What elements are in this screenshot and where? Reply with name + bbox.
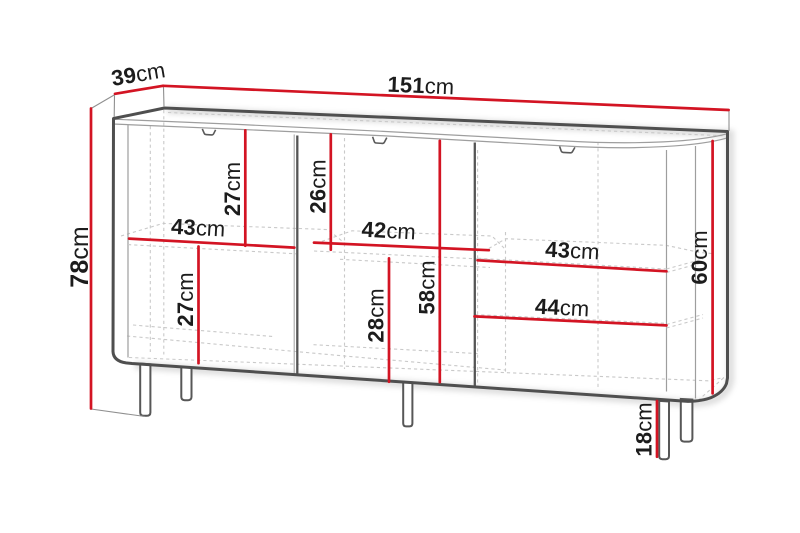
- svg-text:43cm: 43cm: [545, 237, 600, 265]
- svg-text:27cm: 27cm: [173, 272, 198, 326]
- svg-text:151cm: 151cm: [387, 72, 455, 100]
- svg-text:26cm: 26cm: [305, 159, 330, 213]
- svg-text:58cm: 58cm: [414, 260, 439, 314]
- svg-text:27cm: 27cm: [220, 162, 245, 216]
- svg-text:60cm: 60cm: [687, 230, 712, 284]
- svg-text:44cm: 44cm: [534, 294, 589, 322]
- svg-text:42cm: 42cm: [361, 217, 416, 245]
- svg-text:18cm: 18cm: [632, 402, 657, 456]
- svg-text:28cm: 28cm: [364, 288, 389, 342]
- svg-text:43cm: 43cm: [170, 214, 225, 242]
- svg-text:78cm: 78cm: [66, 226, 94, 288]
